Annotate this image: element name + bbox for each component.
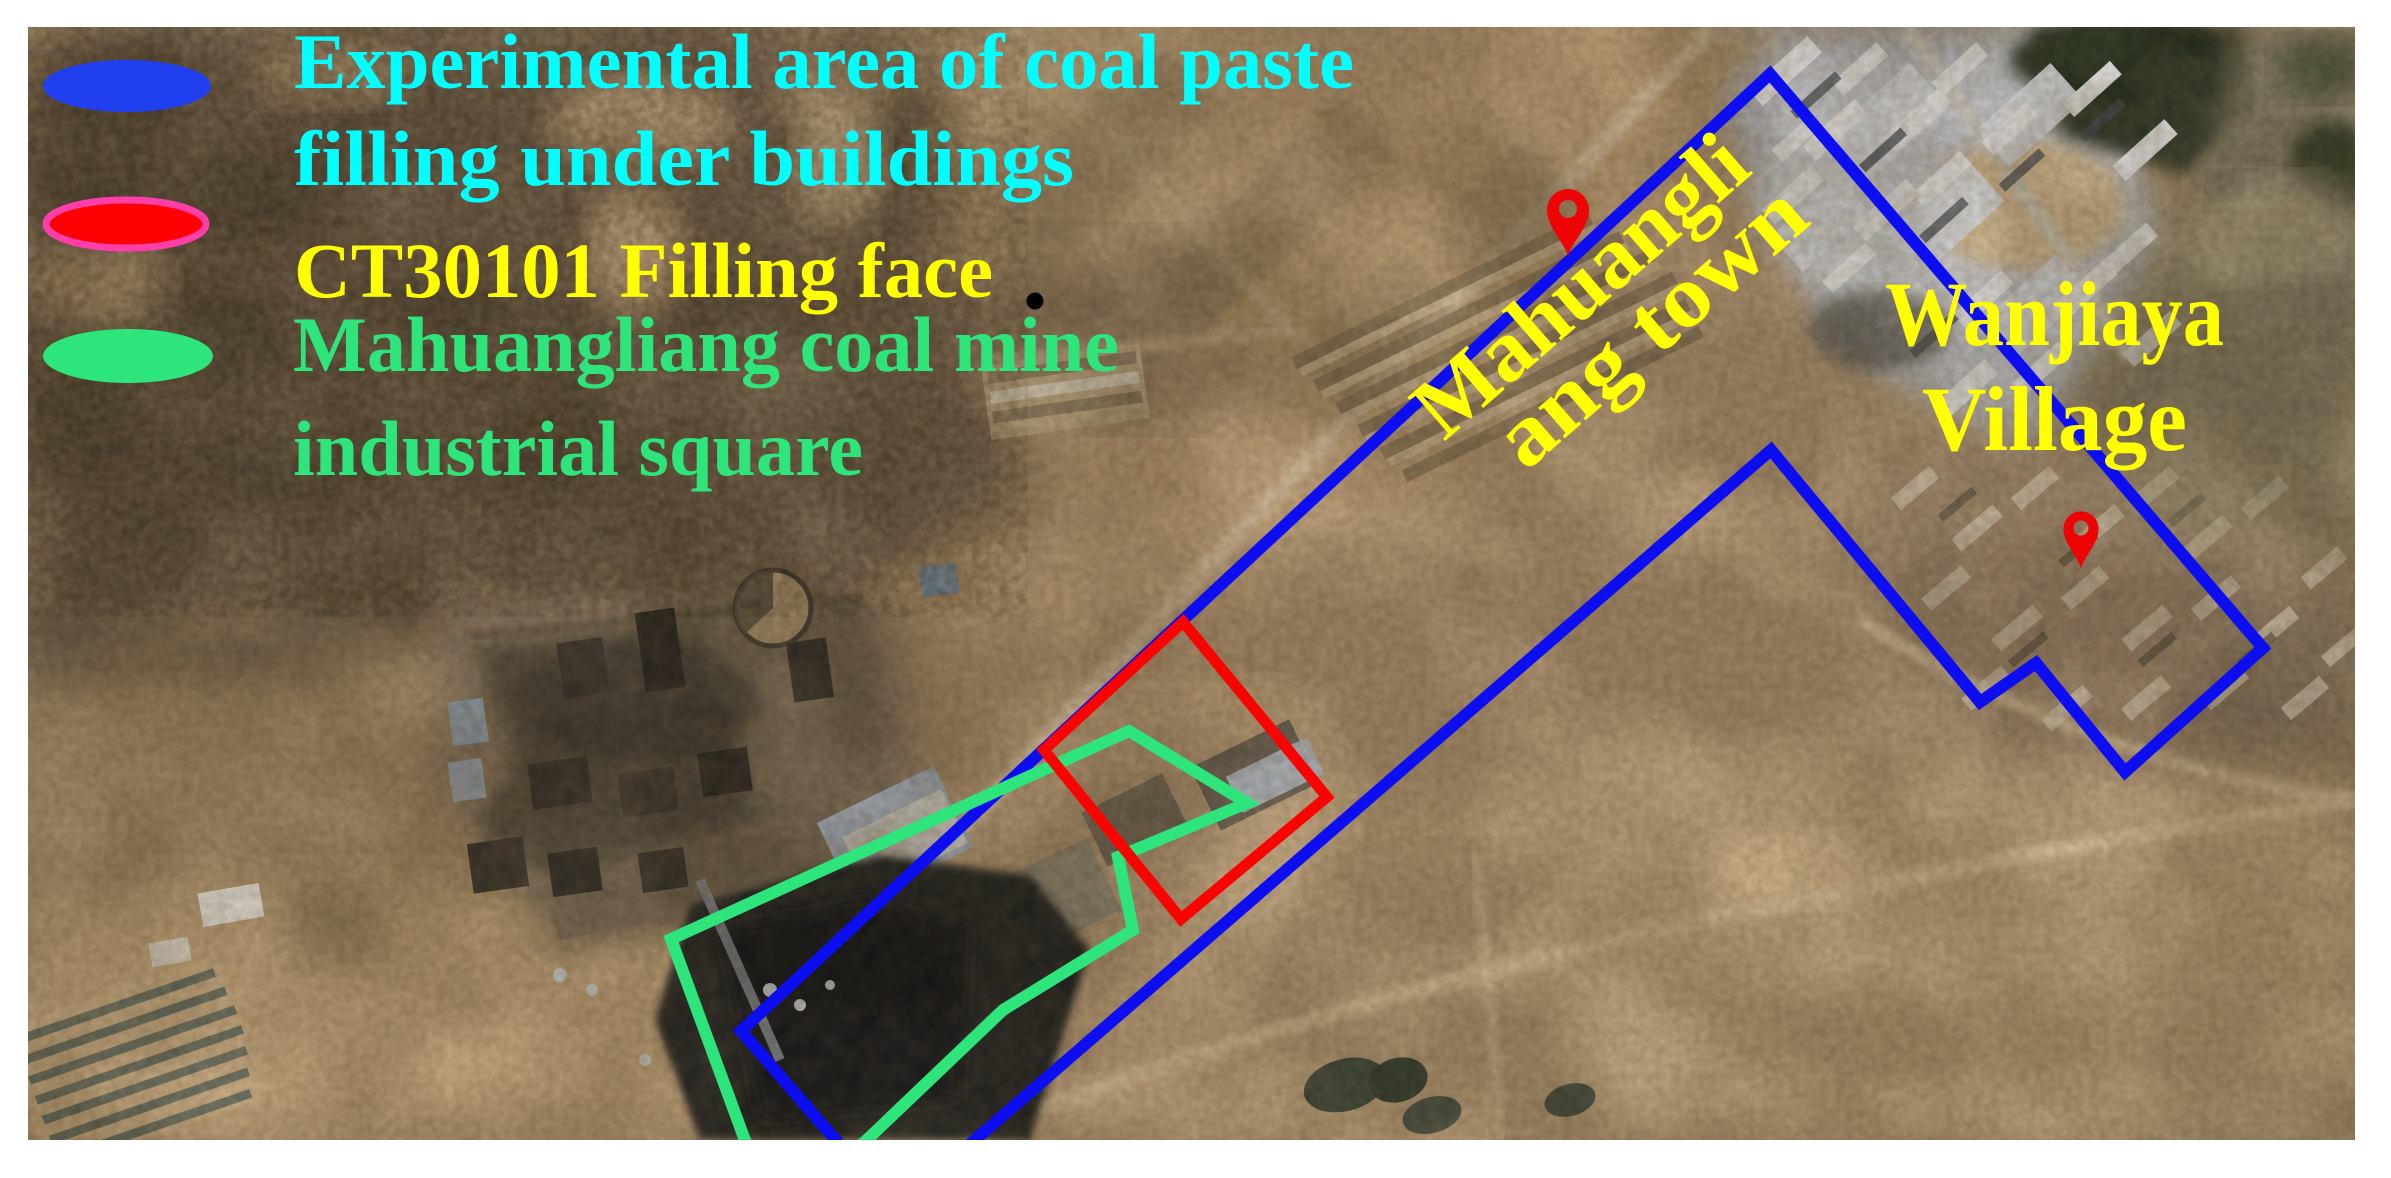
svg-text:Experimental area of coal past: Experimental area of coal paste [294,18,1354,105]
svg-text:industrial square: industrial square [293,405,863,492]
svg-text:Village: Village [1922,368,2187,470]
svg-text:Wanjiaya: Wanjiaya [1885,263,2224,365]
svg-text:Mahuangliang coal mine: Mahuangliang coal mine [293,301,1119,388]
svg-text:filling under buildings: filling under buildings [294,115,1074,202]
